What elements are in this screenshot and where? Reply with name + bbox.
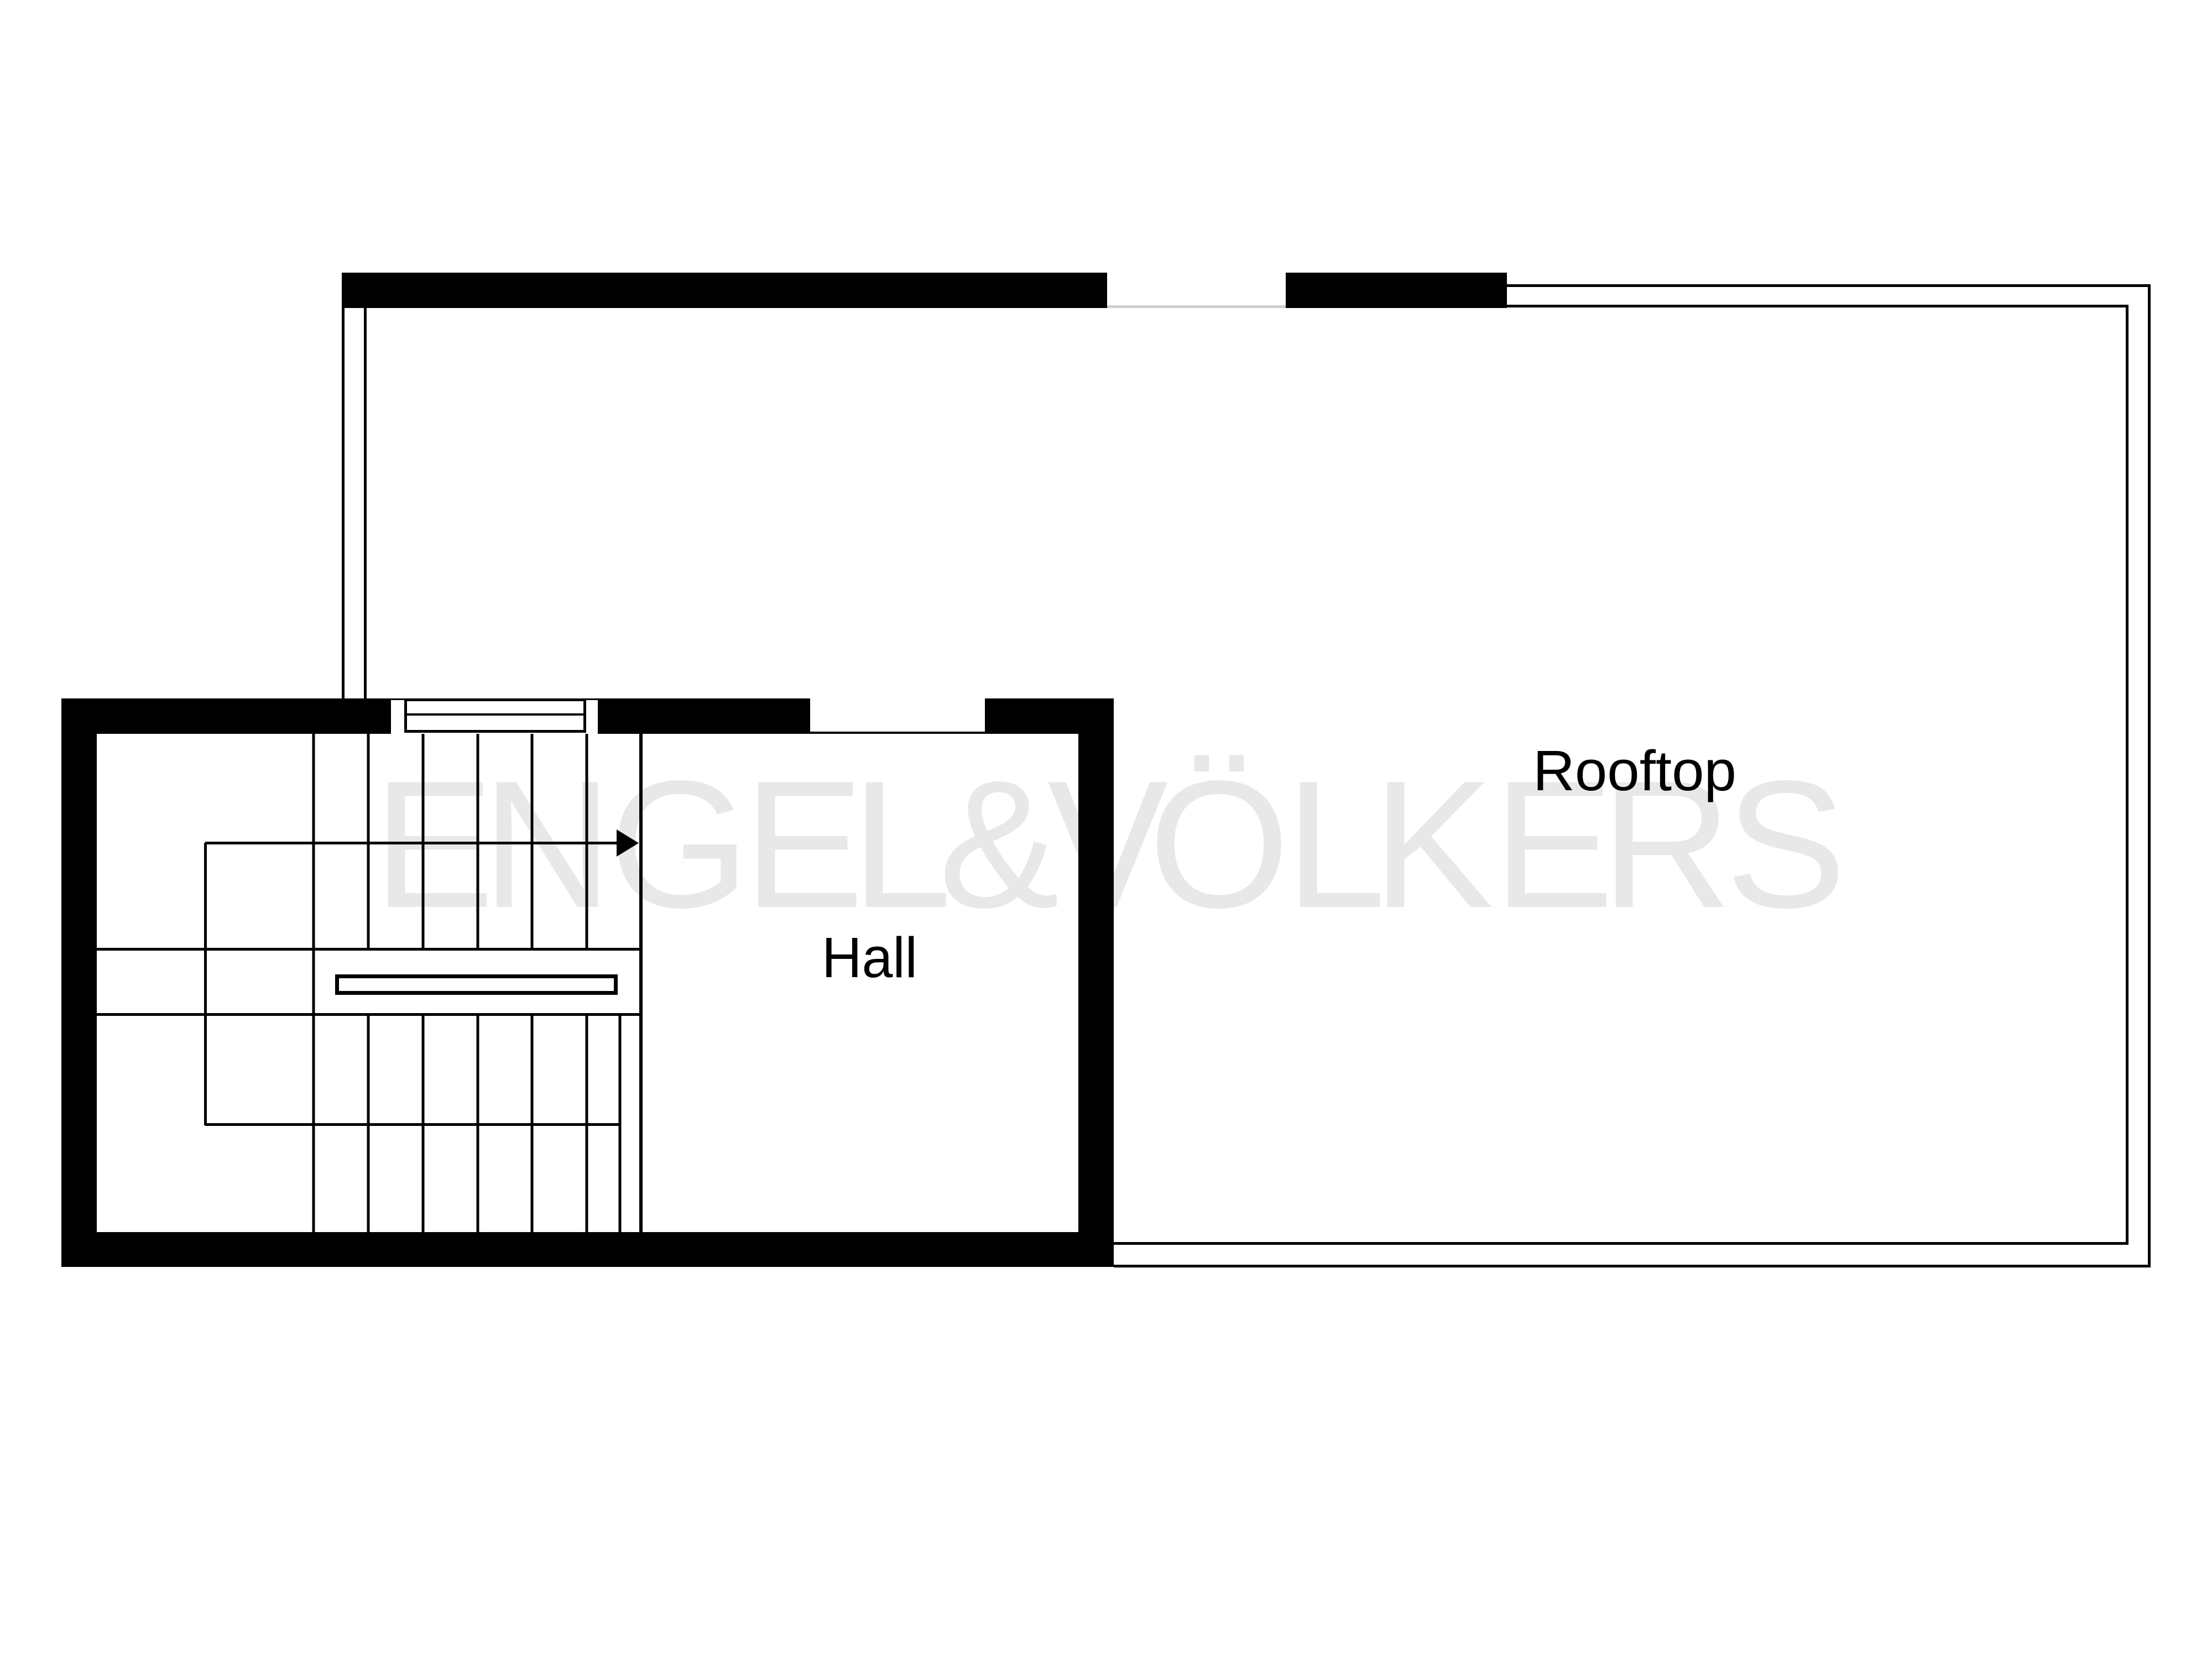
svg-text:Hall: Hall — [822, 926, 917, 989]
svg-text:Rooftop: Rooftop — [1533, 739, 1736, 802]
